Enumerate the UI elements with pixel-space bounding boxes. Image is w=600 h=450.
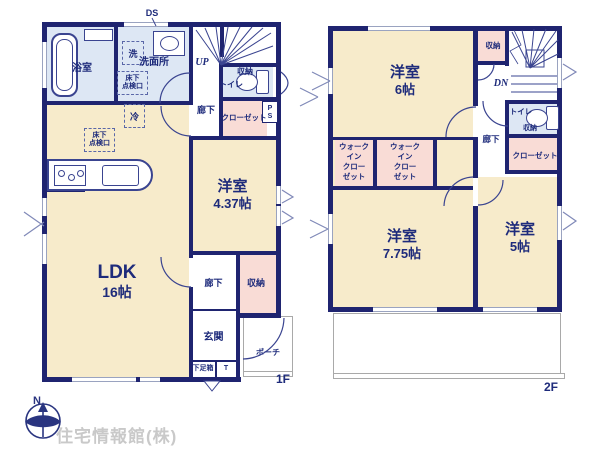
hallway-upper-label-1f: 廊下 (191, 105, 221, 116)
wic-a-line4: ゼット (335, 172, 373, 182)
window-symbol-2f-left-2 (310, 220, 328, 238)
bedroom6-name: 洋室 (355, 64, 455, 82)
window-symbol-1f-toilet (300, 88, 318, 106)
wic-b-line4: ゼット (377, 172, 433, 182)
wall-stairs-bottom-2f (505, 100, 562, 104)
bedroom6-label: 洋室 6帖 (355, 64, 455, 97)
closet-label-2f: クローゼット (508, 152, 562, 161)
washroom-label: 洗面所 (124, 57, 184, 69)
stair-core-1f (220, 27, 224, 57)
window-2f-right-1 (557, 58, 562, 88)
window-2f-right-2 (557, 206, 562, 240)
toilet-storage-label-1f: 収納 (227, 67, 263, 76)
wall-1f-right (276, 22, 281, 318)
wall-wic-bottom (332, 186, 473, 190)
wall-hall-toilet-1f (219, 63, 223, 140)
storage-top-label-2f: 収納 (478, 42, 508, 51)
bedroom-name-1f: 洋室 (190, 178, 275, 196)
bedroom-size-1f: 4.37帖 (190, 196, 275, 211)
wic-a-label: ウォーク イン クロー ゼット (335, 142, 373, 183)
wic-b-line2: イン (377, 152, 433, 162)
toilet-label-2f: トイレ (506, 108, 536, 117)
bedroom775-size: 7.75帖 (352, 246, 452, 261)
hallway-label-2f: 廊下 (474, 134, 508, 144)
wall-bedroom-bottom-1f (189, 251, 281, 255)
stairs-up-label: UP (189, 57, 215, 69)
toilet-label-1f: トイレ (214, 80, 248, 89)
underfloor-hatch-washroom: 床下 点検口 (117, 71, 148, 95)
bedroom775-label: 洋室 7.75帖 (352, 228, 452, 261)
window-symbol-1f-right-2 (282, 211, 293, 224)
bedroom5-label: 洋室 5帖 (488, 221, 552, 254)
door-arc-toilet-1f (281, 72, 288, 94)
storage-label-1f: 収納 (236, 278, 276, 289)
door-gap-bedroom6 (473, 106, 478, 137)
window-washroom-top (124, 22, 168, 27)
ldk-name: LDK (57, 262, 177, 284)
window-bedroom-right-2 (276, 206, 281, 226)
hallway-lower-label-1f: 廊下 (191, 278, 236, 289)
ldk-label: LDK 16帖 (57, 262, 177, 301)
duct-label: DS (138, 8, 166, 19)
kitchen-sink-icon (102, 165, 139, 186)
window-2f-left-2 (328, 214, 333, 244)
room-stairs-2f (508, 26, 562, 104)
shoe-box-label: 下足箱 (190, 365, 216, 373)
vanity-sink-icon (160, 36, 179, 51)
wall-wic-divider-2 (433, 137, 437, 190)
shoe-t-label: T (217, 365, 235, 373)
bedroom5-name: 洋室 (488, 221, 552, 239)
wic-a-line2: イン (335, 152, 373, 162)
stove-burner-icon (58, 170, 65, 177)
window-symbol-1f-right-1 (282, 190, 293, 203)
door-gap-bedrooms (473, 178, 478, 206)
bedroom6-size: 6帖 (355, 82, 455, 97)
wall-2f-top (328, 26, 562, 31)
closet-label-1f: クローゼット (221, 114, 267, 123)
floor2-label: 2F (544, 380, 558, 394)
fridge-label: 冷 (130, 110, 139, 123)
wall-bedroom-top-1f (189, 136, 281, 140)
fridge-box: 冷 (124, 104, 145, 128)
wic-b-line3: クロー (377, 162, 433, 172)
window-ldk-bottom-2 (140, 377, 160, 382)
window-symbol-2f-right-2 (563, 212, 576, 230)
wic-b-label: ウォーク イン クロー ゼット (377, 142, 433, 183)
window-ldk-left-1 (42, 198, 47, 216)
window-2f-left-1 (328, 68, 333, 94)
hatch-label-line1: 床下 (93, 132, 107, 140)
wic-a-line3: クロー (335, 162, 373, 172)
hatch-label-line2: 点検口 (89, 140, 110, 148)
bedroom-label-1f: 洋室 4.37帖 (190, 178, 275, 211)
hatch-label-line2: 点検口 (122, 83, 143, 91)
window-bathroom-left (42, 42, 47, 88)
room-ldk-1f (47, 105, 191, 377)
wic-a-line1: ウォーク (335, 142, 373, 152)
floorplan-canvas: 洗 床下 点検口 冷 床下 点検口 DS 浴室 洗面所 UP 収納 トイレ 廊下… (0, 0, 600, 450)
floor1-label: 1F (276, 372, 290, 386)
wall-main-vertical-2f (473, 26, 478, 312)
stove-burner-icon (68, 174, 75, 181)
entrance-label: 玄関 (191, 332, 236, 344)
window-symbol-2f-right-1 (563, 64, 576, 80)
room-hallway-upper-1f (191, 67, 221, 139)
ldk-size: 16帖 (57, 284, 177, 301)
wall-storage-top-bottom-2f (478, 61, 508, 65)
wall-closet-bottom-2f (505, 170, 562, 174)
window-bedroom775-bottom (373, 307, 437, 312)
company-name: 住宅情報館(株) (56, 422, 177, 447)
hatch-label-line1: 床下 (126, 75, 140, 83)
window-symbol-1f-left (24, 212, 44, 236)
window-ldk-left-2 (42, 234, 47, 264)
wall-storage-left-1f (236, 251, 240, 382)
underfloor-hatch-ldk: 床下 点検口 (84, 128, 115, 152)
balcony-step (333, 373, 565, 379)
wall-1f-notch (240, 313, 281, 318)
wall-wic-top (332, 137, 473, 140)
bedroom775-name: 洋室 (352, 228, 452, 246)
pipe-space-p: P (263, 105, 277, 113)
stairs-down-label: DN (487, 78, 515, 90)
porch-outline (243, 316, 293, 372)
entrance-door-marker (204, 381, 220, 391)
window-bedroom-right-1 (276, 186, 281, 204)
window-bedroom6-top (368, 26, 430, 31)
line-hall-entrance (193, 309, 236, 311)
window-ldk-bottom-1 (72, 377, 136, 382)
bedroom5-size: 5帖 (488, 239, 552, 254)
window-bedroom5-bottom (483, 307, 537, 312)
wall-bluezone-bottom (44, 101, 191, 105)
balcony-outline (333, 313, 561, 374)
wall-toilet-bottom-2f (505, 134, 562, 138)
stove-burner-icon (77, 170, 84, 177)
bathroom-label: 浴室 (52, 63, 112, 75)
wic-b-line1: ウォーク (377, 142, 433, 152)
toilet-storage-label-2f: 収納 (514, 125, 546, 133)
porch-label: ポーチ (243, 348, 293, 357)
bath-counter-icon (84, 29, 113, 41)
compass-north-label: N (33, 395, 41, 407)
